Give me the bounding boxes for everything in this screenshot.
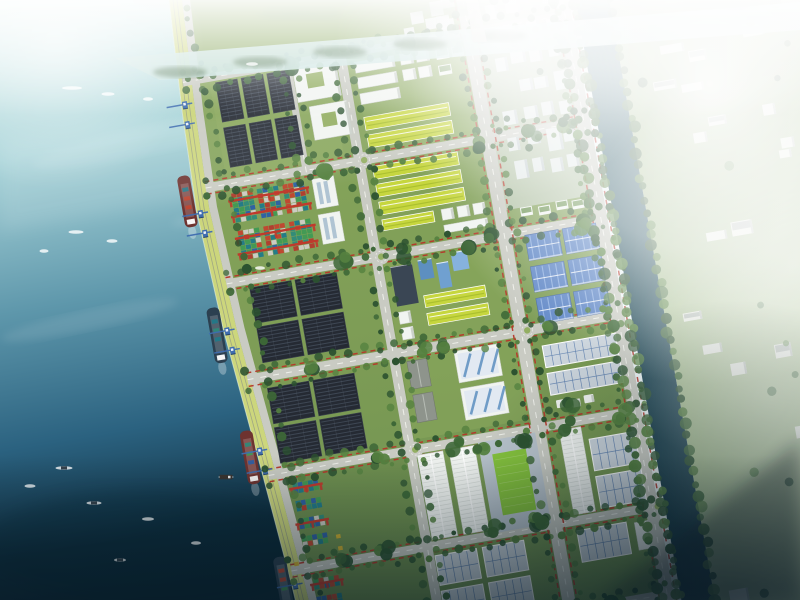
container [299, 245, 305, 250]
container [242, 191, 248, 196]
container [244, 201, 250, 206]
boat-wake [255, 266, 265, 270]
container [300, 191, 306, 196]
container [308, 233, 314, 238]
container [240, 245, 246, 250]
container [256, 242, 262, 247]
boat [40, 249, 49, 253]
fog-top-left [0, 0, 240, 210]
container [285, 199, 291, 204]
boat-wake [40, 249, 49, 253]
solar-array [302, 312, 350, 355]
container [263, 226, 269, 231]
container [288, 183, 294, 188]
container [259, 203, 265, 208]
boat [69, 230, 84, 234]
container [269, 225, 275, 230]
crane-cab [258, 449, 261, 452]
container [256, 237, 262, 242]
boat [255, 266, 265, 270]
container [235, 217, 241, 222]
container [291, 236, 297, 241]
container [246, 216, 252, 221]
container [303, 206, 309, 211]
container [243, 229, 249, 234]
container [275, 195, 281, 200]
container [266, 241, 272, 246]
container [265, 236, 271, 241]
container [261, 213, 267, 218]
solar-array [267, 381, 315, 424]
container [304, 244, 310, 249]
container [258, 252, 264, 257]
boat [107, 239, 118, 243]
crane-cab [225, 329, 228, 332]
container [289, 221, 295, 226]
container [309, 243, 315, 248]
container [251, 243, 257, 248]
container [294, 220, 300, 225]
container [246, 244, 252, 249]
container [244, 206, 250, 211]
container [258, 198, 264, 203]
container [241, 217, 247, 222]
container [273, 185, 279, 190]
shadow-bottom-right [430, 300, 800, 600]
crane-cab [203, 231, 206, 234]
container [302, 234, 308, 239]
container [252, 215, 258, 220]
container [268, 250, 274, 255]
container [277, 210, 283, 215]
crane-cab [231, 348, 234, 351]
container [289, 193, 295, 198]
container [250, 238, 256, 243]
container [238, 230, 244, 235]
container [284, 194, 290, 199]
boat-wake [69, 230, 84, 234]
container [247, 254, 253, 259]
container [281, 233, 287, 238]
container [279, 223, 285, 228]
container [253, 253, 259, 258]
container [250, 205, 256, 210]
container [296, 197, 302, 202]
container [290, 198, 296, 203]
container [300, 219, 306, 224]
container [257, 188, 263, 193]
container [275, 200, 281, 205]
container [295, 192, 301, 197]
boat-wake [107, 239, 118, 243]
solar-array [313, 373, 361, 416]
container [301, 196, 307, 201]
container [271, 240, 277, 245]
container [296, 230, 302, 235]
container [245, 239, 251, 244]
container [307, 228, 313, 233]
container [293, 246, 299, 251]
container [274, 224, 280, 229]
container [301, 229, 307, 234]
container [277, 239, 283, 244]
container [270, 201, 276, 206]
container [248, 228, 254, 233]
aerial-render-stage: Aerial rendering of a coastal industrial… [0, 0, 800, 600]
container [265, 202, 271, 207]
container [297, 235, 303, 240]
container [249, 200, 255, 205]
container [284, 248, 290, 253]
container [287, 208, 293, 213]
container [297, 207, 303, 212]
container [291, 231, 297, 236]
container [305, 218, 311, 223]
container [254, 227, 260, 232]
container [292, 208, 298, 213]
container [282, 238, 288, 243]
industrial-park-aerial-rendering: Aerial rendering of a coastal industrial… [0, 0, 800, 600]
crane-cab [199, 212, 202, 215]
